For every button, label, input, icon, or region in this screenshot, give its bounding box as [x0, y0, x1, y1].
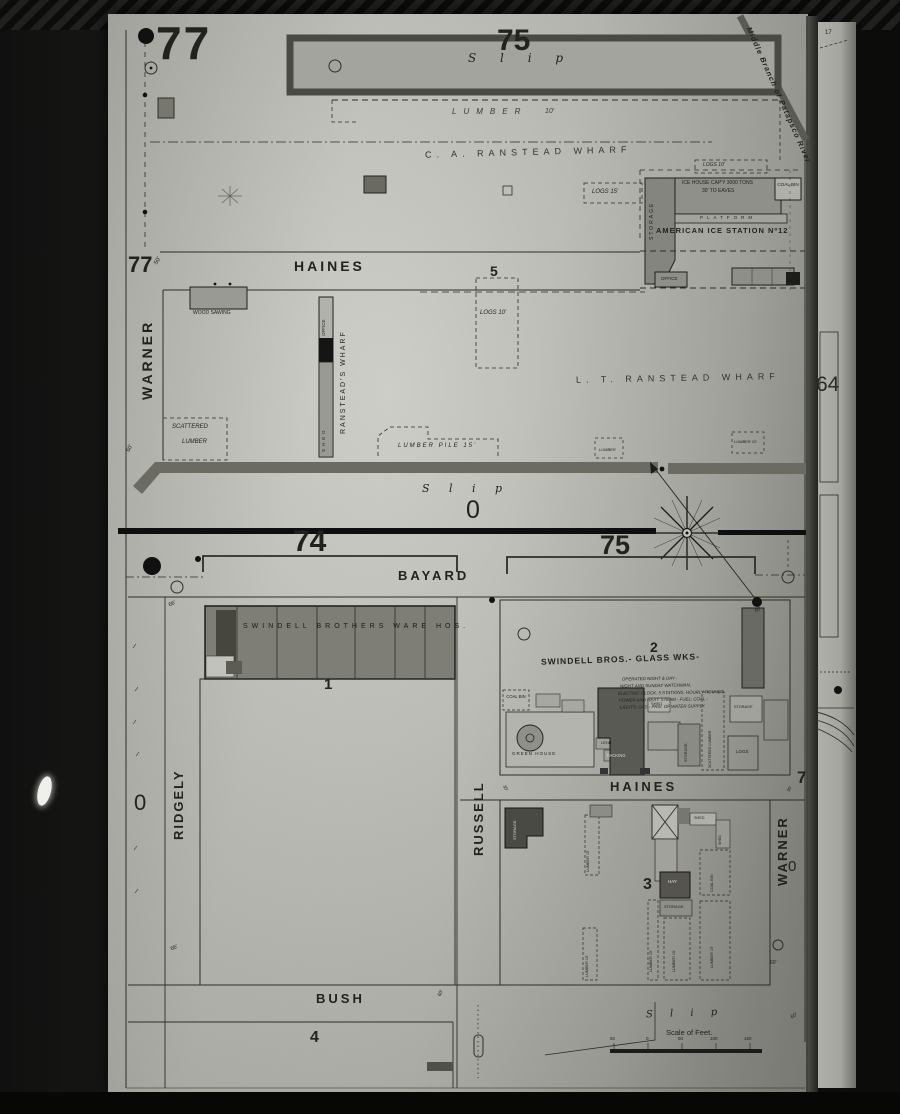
haines-upper-label: HAINES: [294, 259, 365, 273]
wharf-band-west: [133, 462, 658, 494]
lumber-yard-dim: 10': [545, 108, 554, 115]
faint-star: [218, 186, 242, 206]
ice-south-building: [732, 268, 794, 285]
ranstead-shed-label: SHED: [322, 427, 327, 452]
slip-75-basin: [290, 38, 778, 92]
swindell-warehouse-label: SWINDELL BROTHERS WARE HOS.: [243, 623, 469, 630]
edge-0-number: 0: [788, 859, 796, 874]
shed-building: [364, 176, 386, 193]
b3-coal-bin-outline: [700, 850, 730, 895]
wood-sawing-label: WOOD SAWING: [193, 311, 231, 316]
dot-e: [229, 283, 232, 286]
edge-7-number: 7: [797, 769, 806, 786]
ranstead-office-label: OFFICE: [322, 320, 327, 337]
dot-c: [143, 210, 148, 215]
b3-hay-building: [660, 872, 690, 898]
slip-label-top: S l i p: [468, 52, 573, 64]
block-3-number: 3: [643, 877, 652, 893]
hydrant-dot-b: [143, 557, 161, 575]
wood-sawing-building: [190, 287, 247, 309]
block-74-number: 74: [293, 527, 326, 557]
ice-storage-label: STORAGE: [650, 202, 655, 240]
scale-tick-0: 50: [610, 1037, 615, 1042]
wharf-zero-number: 0: [466, 498, 480, 523]
wharf-band-east: [668, 463, 806, 474]
gw-coal-bin-outline: [503, 690, 529, 710]
gw-logs-label: LOGS: [736, 750, 749, 755]
strip-top-dashes: [820, 40, 848, 48]
b3-storage-L: [505, 808, 543, 848]
block-75-lower-number: 75: [600, 532, 630, 559]
scattered-lumber-line1: SCATTERED: [172, 424, 208, 430]
logs-10-outline: [476, 278, 518, 368]
block-4-number: 4: [310, 1030, 319, 1046]
scale-tick-2: 50: [678, 1037, 683, 1042]
b3-lumber-e-outline: [700, 901, 730, 980]
b3-shed-a-label: SHED: [694, 817, 705, 821]
warner-upper-label: WARNER: [140, 320, 154, 400]
scattered-lumber-line2: LUMBER: [182, 439, 207, 445]
strip-hydrant-dot: [834, 686, 842, 694]
b3-storage-a-label: STORAGE: [513, 821, 517, 841]
gw-storage-a-label: STORAGE: [734, 706, 753, 710]
gw-shed-label: SHED: [651, 702, 662, 706]
haines-lower-label: HAINES: [610, 780, 677, 793]
scale-tick-3: 100: [710, 1037, 718, 1042]
lumber-pile-outline: [378, 427, 498, 456]
symbol-circle-b: [171, 581, 183, 593]
logs-15-label: LOGS 15': [592, 189, 618, 195]
scale-tick-1: 0: [646, 1037, 649, 1042]
swindell-warehouse: [205, 606, 455, 679]
block-2-number: 2: [650, 640, 658, 654]
left-street-zero: 0: [134, 792, 146, 814]
gw-storage-b-label: STORAGE: [685, 744, 689, 763]
ice-house-label: ICE HOUSE CAP'Y 3000 TONS: [682, 181, 753, 186]
platform-label: PLATFORM: [700, 216, 756, 221]
strip-parcel-a: [820, 332, 838, 482]
dot-f: [195, 556, 201, 562]
scale-ticks-lines: [614, 1043, 750, 1049]
block-77-mid-number: 77: [128, 254, 152, 276]
gw-furnace: [517, 725, 543, 751]
gw-east-yard: [764, 700, 788, 740]
b3-lumber-a-label: LUMBER 15': [587, 850, 591, 872]
symbol-circle-e: [773, 940, 783, 950]
compass-needle-origin: [660, 467, 665, 472]
scale-bar: [610, 1049, 762, 1053]
warner-lower-label: WARNER: [776, 816, 789, 886]
glassworks-east-building: [742, 608, 764, 688]
block-77-number: 77: [156, 20, 211, 66]
ice-house-eaves-label: 30' TO EAVES: [702, 189, 734, 194]
lumber-yard-label: LUMBER: [452, 108, 527, 116]
b3-hay-label: HAY: [668, 880, 677, 885]
block-1-number: 1: [324, 677, 332, 692]
symbol-circle-a-dot: [150, 67, 153, 70]
compass-needle: [656, 470, 757, 601]
gw-storage-b: [678, 724, 700, 766]
b3-coal-bin-label: COAL BIN: [711, 874, 715, 892]
american-ice-station-label: AMERICAN ICE STATION Nº12: [656, 227, 788, 235]
small-building-a: [158, 98, 174, 118]
b3-small-a: [590, 805, 612, 817]
strip-17-number: 17: [825, 30, 832, 36]
slip-label-mid: S l i p: [422, 483, 510, 494]
ranstead-wharf-vert-label: RANSTEAD'S WHARF: [340, 330, 347, 434]
b3-lumber-e-label: LUMBER 15': [711, 946, 715, 968]
b3-lumber-c-label: LUMBER 15': [650, 950, 654, 972]
gw-tiny-b: [640, 768, 650, 774]
dot-d: [214, 283, 217, 286]
scale-tick-4: 150: [744, 1037, 752, 1042]
bayard-label: BAYARD: [398, 569, 469, 582]
map-linework: [0, 0, 900, 1114]
lumber-yard-notch: [332, 100, 356, 122]
warehouse-dark-section: [216, 610, 236, 662]
dot-g: [489, 597, 495, 603]
gw-mid-building: [648, 722, 680, 750]
b3-annex: [678, 808, 690, 824]
ice-black-building: [786, 272, 800, 285]
russell-label: RUSSELL: [472, 781, 485, 856]
russell-oval-marker: [474, 1035, 483, 1057]
lumber-pile-label: LUMBER PILE 15': [398, 443, 477, 449]
gw-scattered-lumber-label: SCATTERED LUMBER: [709, 731, 713, 768]
block75-bracket: [507, 557, 755, 574]
adjacent-block-64-number: 64: [816, 374, 839, 395]
block-5-number: 5: [490, 264, 498, 278]
strip-railroad-curves: [816, 712, 854, 752]
dot-b: [143, 93, 148, 98]
logs-10-label: LOGS 10': [480, 310, 506, 316]
bulkhead-line-west: [118, 528, 656, 534]
strip-parcel-b: [820, 495, 838, 637]
left-street-tick-marks: [133, 644, 139, 893]
dim-60c: 60': [770, 961, 777, 966]
gw-packing-label: PACKING: [607, 754, 626, 758]
b3-storage-b-label: STORAGE: [664, 905, 684, 909]
gw-coal-bin-label: COAL BIN: [505, 694, 527, 699]
ridgely-label: RIDGELY: [172, 769, 185, 840]
symbol-circle-c: [782, 571, 794, 583]
compass-star: [650, 496, 724, 570]
lumber-small-label: LUMBER: [599, 448, 616, 452]
bush-label: BUSH: [316, 992, 365, 1005]
slip-corner-lines: [545, 1002, 655, 1055]
hydrant-dot-a: [138, 28, 154, 44]
b3-shed-b-label: SHED: [719, 835, 723, 845]
ranstead-black-segment: [319, 338, 333, 362]
b3-lumber-b-label: LUMBER 15': [586, 955, 590, 977]
sanborn-map-photo: 77 75 S l i p LUMBER 10' C. A. RANSTEAD …: [0, 0, 900, 1114]
tiny-building: [503, 186, 512, 195]
lumber-small2-label: LUMBER 10': [734, 440, 757, 444]
coal-bin-label: COAL BIN: [777, 182, 799, 188]
gw-tiny-a: [600, 768, 608, 774]
ice-logs-label: LOGS 10': [703, 163, 725, 168]
ice-office-label: OFFICE: [661, 277, 678, 282]
gw-small-b: [562, 700, 584, 712]
bulkhead-line-east: [718, 530, 806, 535]
gw-small-a: [536, 694, 560, 707]
block4-outline: [128, 1022, 453, 1088]
block1-yard-outline: [200, 679, 455, 985]
scale-of-feet-label: Scale of Feet.: [666, 1029, 712, 1037]
symbol-circle-d: [518, 628, 530, 640]
gw-green-house-label: GREEN HOUSE: [512, 752, 556, 757]
warehouse-small-annex: [226, 661, 242, 674]
block4-small-building: [427, 1062, 453, 1071]
b3-lumber-d-label: LUMBER 15': [673, 950, 677, 972]
gw-lehr-label: LEHR: [601, 741, 612, 745]
b3-lumber-d-outline: [664, 918, 690, 980]
